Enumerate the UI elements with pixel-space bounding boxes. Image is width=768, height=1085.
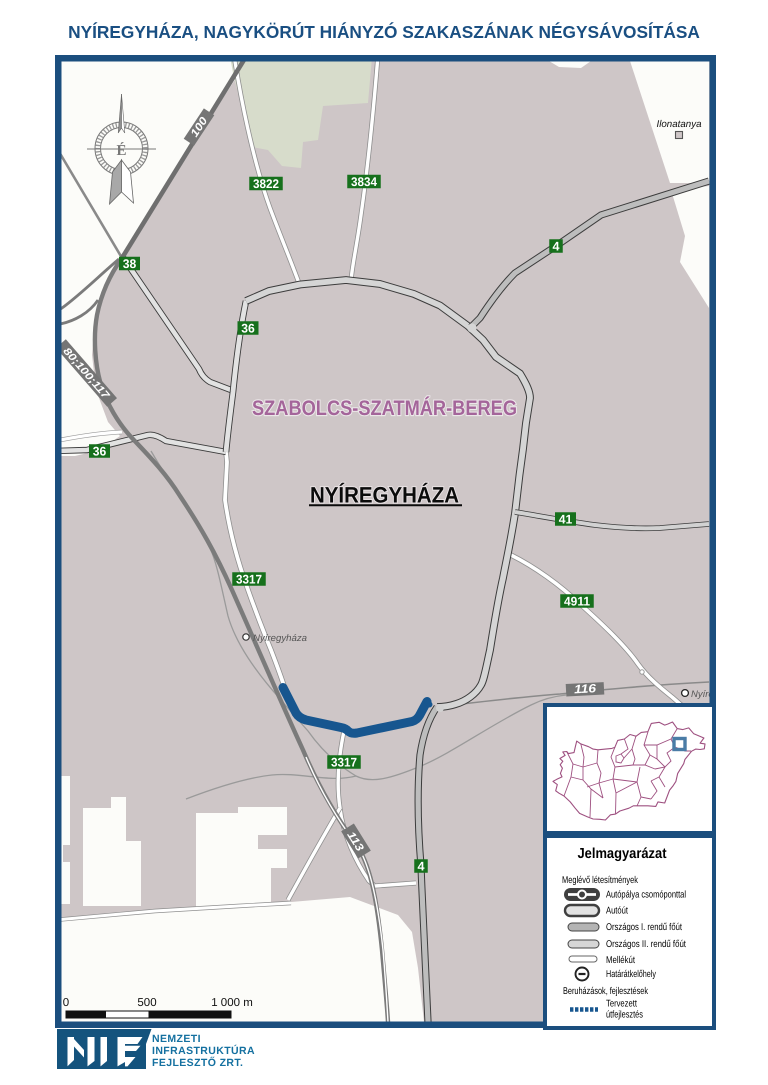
svg-text:0: 0 [63, 997, 69, 1009]
svg-text:4911: 4911 [564, 594, 590, 608]
svg-text:3317: 3317 [236, 572, 262, 586]
svg-text:Autópálya csomóponttal: Autópálya csomóponttal [606, 890, 686, 901]
svg-text:3317: 3317 [331, 755, 357, 769]
svg-text:NYÍREGYHÁZA: NYÍREGYHÁZA [310, 482, 459, 507]
svg-text:Országos II. rendű főút: Országos II. rendű főút [606, 939, 686, 950]
svg-text:36: 36 [241, 321, 255, 335]
svg-text:Tervezett: Tervezett [606, 999, 637, 1010]
svg-text:Nyíregyháza: Nyíregyháza [253, 633, 307, 644]
svg-text:4: 4 [553, 239, 560, 253]
svg-text:Ilonatanya: Ilonatanya [657, 119, 703, 130]
svg-text:Meglévő létesítmények: Meglévő létesítmények [562, 875, 638, 886]
svg-text:41: 41 [559, 512, 573, 526]
svg-text:116: 116 [574, 681, 597, 696]
svg-text:3834: 3834 [351, 175, 377, 189]
svg-text:INFRASTRUKTÚRA: INFRASTRUKTÚRA [152, 1044, 255, 1057]
svg-text:Határátkelőhely: Határátkelőhely [606, 969, 656, 980]
svg-text:Jelmagyarázat: Jelmagyarázat [578, 846, 667, 862]
svg-text:36: 36 [93, 444, 107, 458]
svg-text:útfejlesztés: útfejlesztés [606, 1010, 643, 1021]
svg-text:Országos I. rendű főút: Országos I. rendű főút [606, 922, 682, 933]
svg-text:É: É [116, 142, 126, 159]
svg-text:FEJLESZTŐ ZRT.: FEJLESZTŐ ZRT. [152, 1056, 243, 1069]
svg-text:3822: 3822 [253, 177, 279, 191]
svg-text:Mellékút: Mellékút [606, 955, 635, 966]
svg-text:4: 4 [418, 859, 425, 873]
svg-text:Autóút: Autóút [606, 906, 628, 917]
svg-text:1 000 m: 1 000 m [211, 997, 253, 1009]
svg-text:38: 38 [123, 257, 137, 271]
svg-text:500: 500 [137, 997, 156, 1009]
svg-text:NEMZETI: NEMZETI [152, 1033, 201, 1045]
svg-text:SZABOLCS-SZATMÁR-BEREG: SZABOLCS-SZATMÁR-BEREG [252, 396, 517, 420]
svg-text:Beruházások, fejlesztések: Beruházások, fejlesztések [563, 986, 648, 997]
